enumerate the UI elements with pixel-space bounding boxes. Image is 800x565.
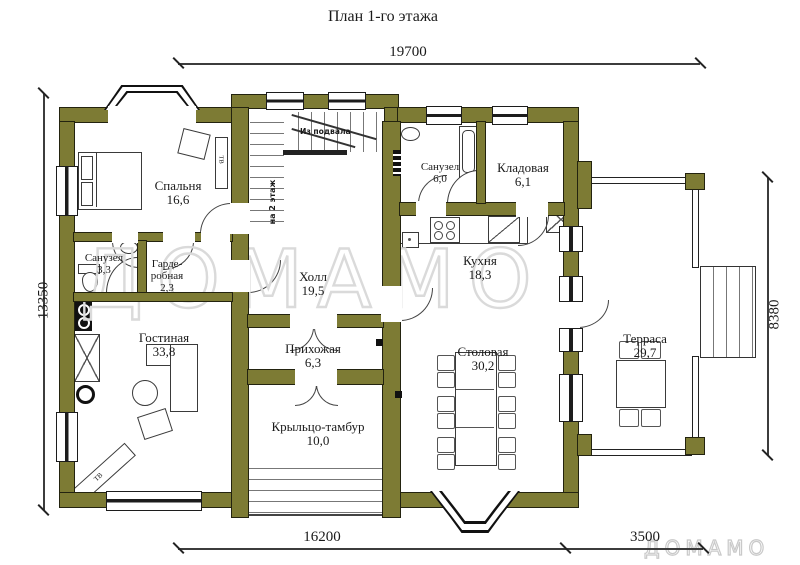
dim-line-top bbox=[178, 63, 700, 65]
dim-value-top: 19700 bbox=[368, 44, 448, 61]
room-label-entry: Прихожая6,3 bbox=[280, 328, 346, 384]
room-label-bath-big: Санузел6,0 bbox=[408, 150, 472, 198]
room-label-terrace: Терраса29,7 bbox=[611, 318, 679, 374]
page-title: План 1-го этажа bbox=[298, 8, 468, 26]
door-arc bbox=[316, 384, 338, 406]
terrace-rail bbox=[692, 356, 699, 451]
bed-line bbox=[96, 153, 97, 207]
table-line bbox=[456, 427, 494, 428]
door-opening bbox=[230, 260, 250, 292]
room-label-storage: Кладовая6,1 bbox=[488, 147, 558, 203]
bay-opening bbox=[108, 106, 196, 123]
door-opening bbox=[201, 231, 230, 243]
pillow bbox=[81, 182, 93, 206]
room-label-hall: Холл19,5 bbox=[283, 256, 343, 312]
porch-steps bbox=[248, 458, 383, 516]
terrace-post bbox=[686, 438, 704, 454]
dim-value-bottom-left: 16200 bbox=[290, 529, 354, 546]
window bbox=[328, 92, 366, 110]
coffee-table bbox=[132, 380, 158, 406]
window bbox=[559, 374, 583, 422]
stairs-landing bbox=[283, 150, 347, 155]
window bbox=[559, 276, 583, 302]
room-label-kitchen: Кухня18,3 bbox=[448, 240, 512, 296]
door-stop bbox=[395, 391, 402, 398]
chair bbox=[498, 454, 516, 470]
chair bbox=[498, 413, 516, 429]
floor-plan: План 1-го этажа ДОМАМО ДОМАМО bbox=[0, 0, 800, 565]
chair bbox=[498, 396, 516, 412]
room-label-dining: Столовая30,2 bbox=[449, 331, 517, 387]
door-arc bbox=[578, 300, 609, 328]
door-opening bbox=[163, 231, 195, 243]
window bbox=[559, 328, 583, 352]
window bbox=[559, 226, 583, 252]
wall bbox=[578, 435, 591, 455]
dim-value-left: 13350 bbox=[36, 271, 53, 331]
window bbox=[106, 491, 202, 511]
window bbox=[492, 106, 528, 125]
door-stop bbox=[376, 339, 383, 346]
dim-value-bottom-right: 3500 bbox=[616, 529, 674, 546]
wall bbox=[477, 122, 485, 203]
wood-cabinet bbox=[74, 334, 100, 382]
dim-value-right: 8380 bbox=[767, 285, 784, 345]
door-opening bbox=[516, 201, 548, 217]
tv-label: ТВ bbox=[218, 155, 225, 163]
door-opening bbox=[416, 201, 446, 217]
wall bbox=[398, 108, 578, 122]
chair bbox=[498, 437, 516, 453]
armchair bbox=[177, 128, 210, 160]
window bbox=[56, 412, 78, 462]
pillow bbox=[81, 156, 93, 180]
door-opening bbox=[290, 313, 337, 329]
armchair bbox=[137, 408, 173, 440]
room-label-bath-small: Санузел3,3 bbox=[74, 241, 134, 289]
room-label-bedroom: Спальня16,6 bbox=[138, 165, 218, 221]
window bbox=[426, 106, 462, 125]
terrace-rail bbox=[692, 183, 699, 268]
chair bbox=[437, 454, 455, 470]
door-opening bbox=[562, 300, 580, 328]
dim-line-bottom bbox=[178, 548, 703, 550]
room-label-living: Гостиная33,8 bbox=[128, 317, 200, 373]
room-label-porch: Крыльцо-тамбур10,0 bbox=[258, 406, 378, 462]
wall bbox=[232, 95, 398, 108]
coat-hooks bbox=[393, 150, 401, 176]
chair bbox=[619, 409, 639, 427]
sink bbox=[401, 127, 420, 141]
stairs-to-floor2-note: на 2 этаж bbox=[268, 174, 280, 230]
tv-label: ТВ bbox=[92, 471, 104, 483]
door-opening bbox=[230, 203, 250, 234]
terrace-rail bbox=[578, 177, 692, 184]
chair bbox=[437, 396, 455, 412]
table-line bbox=[456, 389, 494, 390]
wall bbox=[385, 108, 398, 122]
terrace-post bbox=[686, 174, 704, 189]
stairs-from-basement-note: Из подвала bbox=[300, 127, 361, 136]
door-opening bbox=[381, 286, 402, 322]
wall bbox=[232, 108, 248, 517]
chair bbox=[437, 437, 455, 453]
terrace-rail bbox=[578, 449, 692, 456]
door-arc bbox=[295, 384, 317, 406]
chair bbox=[437, 413, 455, 429]
chair bbox=[641, 409, 661, 427]
room-label-wardrobe: Гарде- робная2,3 bbox=[140, 247, 194, 306]
terrace-steps bbox=[700, 266, 756, 358]
window bbox=[266, 92, 304, 110]
bay-window bbox=[430, 491, 520, 533]
window bbox=[56, 166, 78, 216]
stove-ring-icon bbox=[76, 385, 95, 404]
wall bbox=[578, 162, 591, 208]
